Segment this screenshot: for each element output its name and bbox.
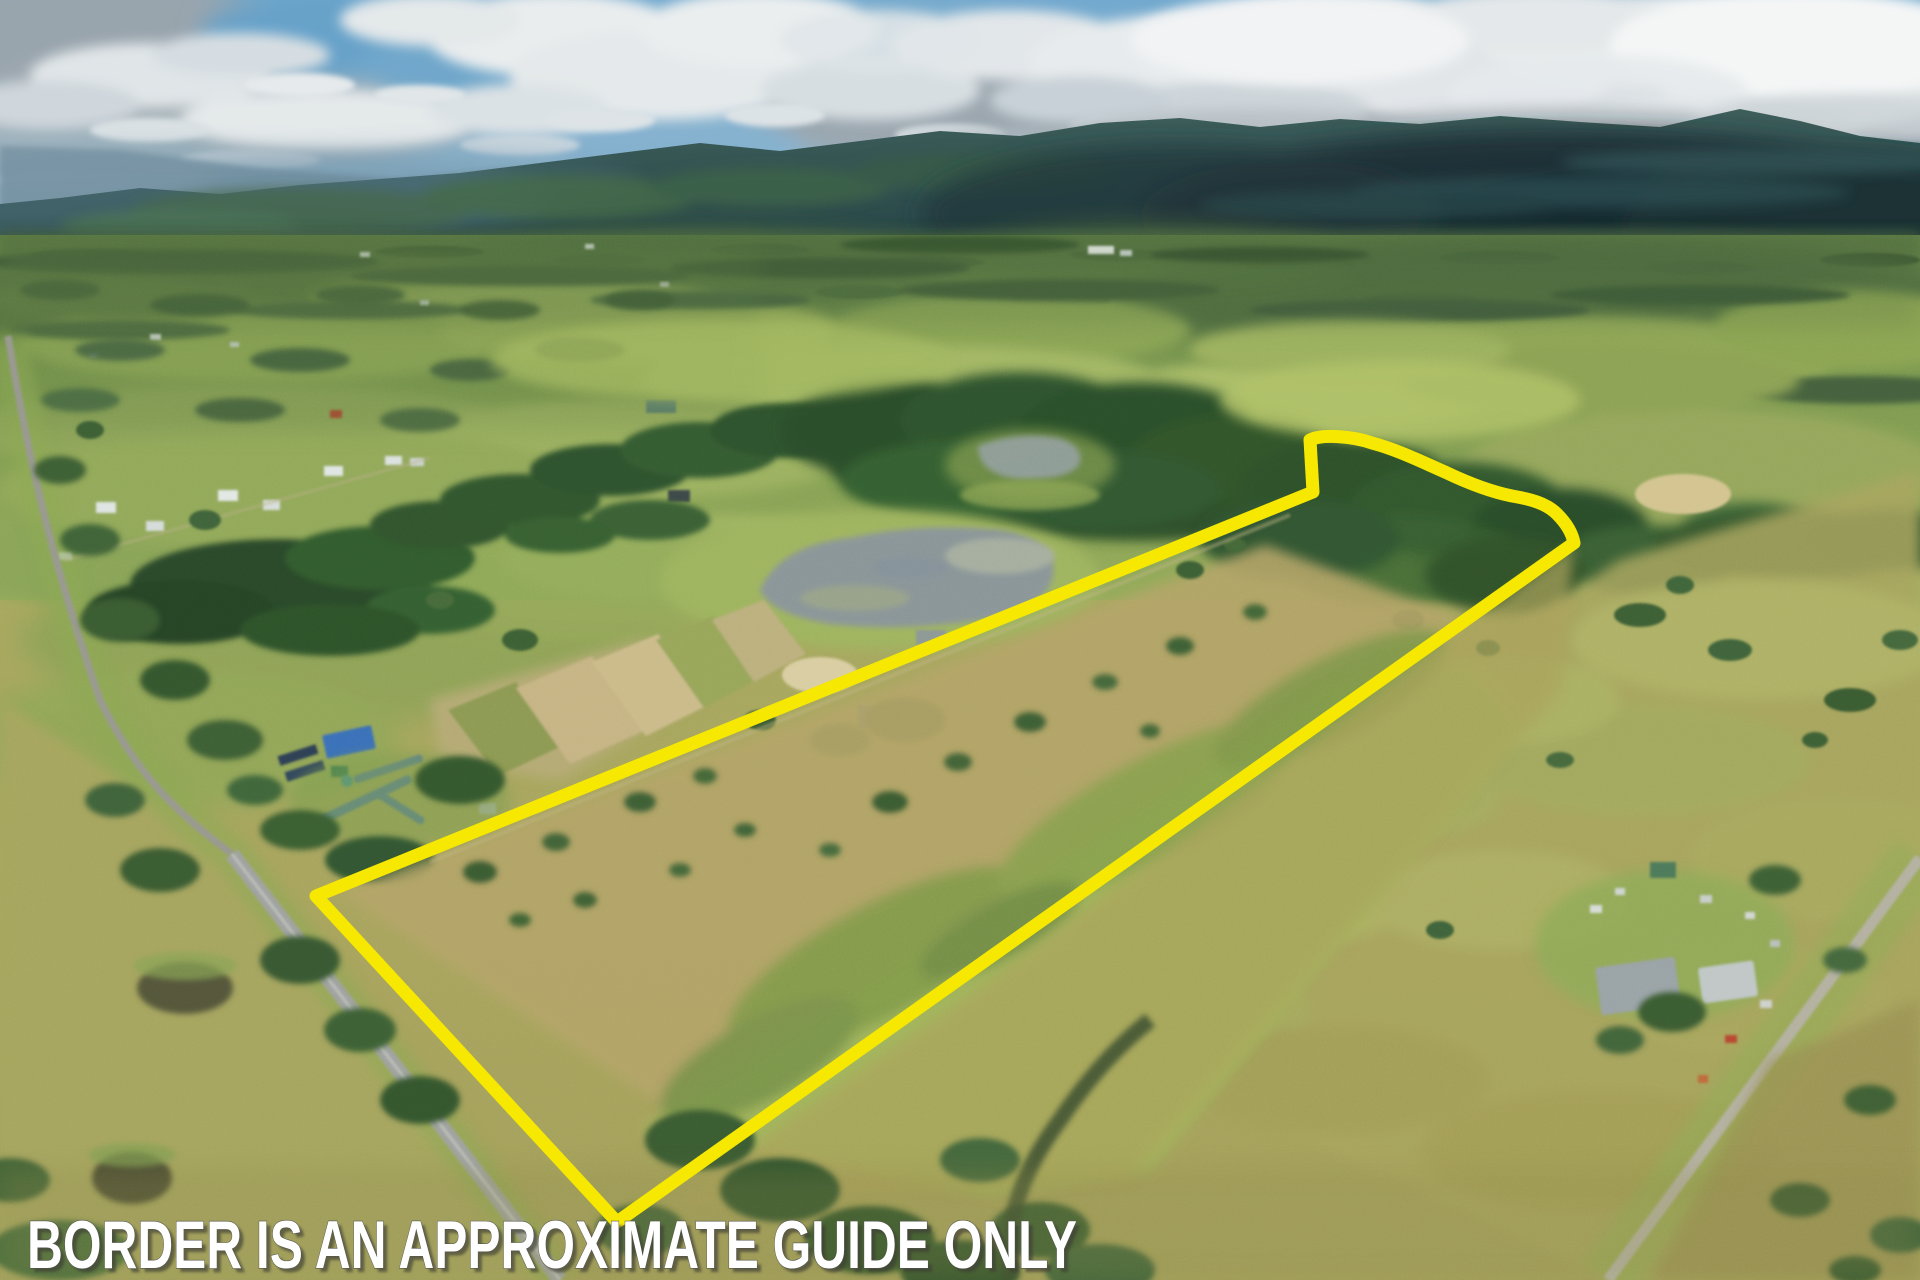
svg-text:BORDER IS AN APPROXIMATE GUIDE: BORDER IS AN APPROXIMATE GUIDE ONLY	[27, 1207, 1077, 1280]
